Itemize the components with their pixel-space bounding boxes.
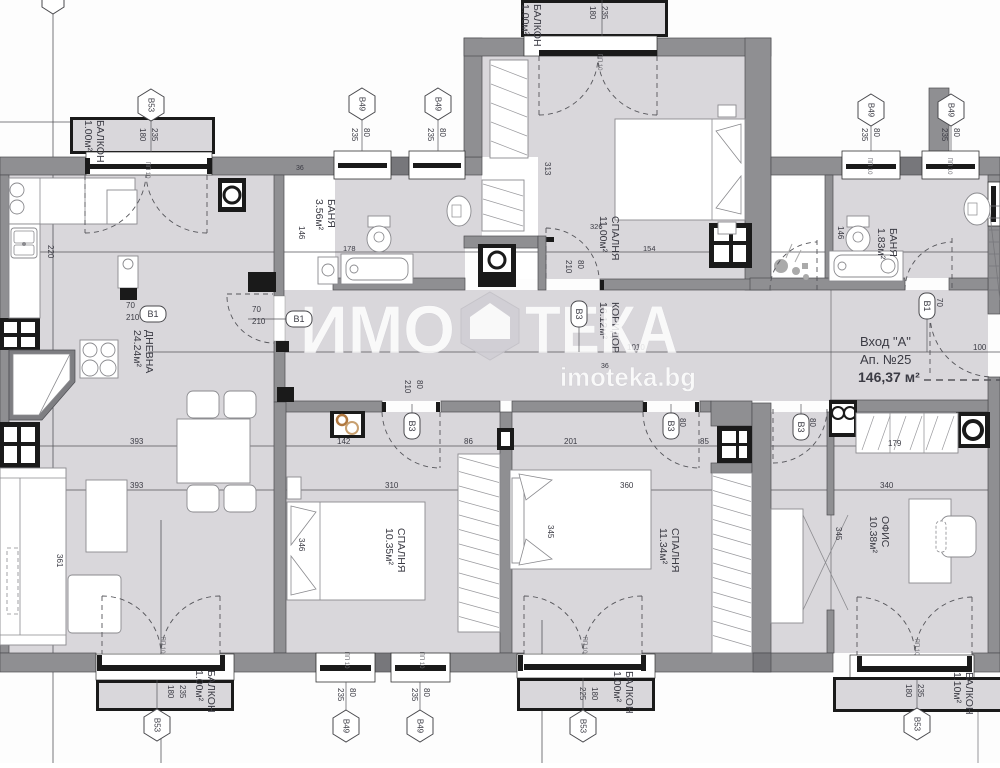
svg-text:24.24м²: 24.24м²: [131, 330, 143, 367]
svg-text:235: 235: [940, 128, 949, 142]
svg-text:201: 201: [564, 437, 578, 446]
svg-text:80: 80: [438, 128, 447, 137]
svg-text:B53: B53: [153, 718, 162, 733]
svg-text:ПП 10: ПП 10: [144, 162, 150, 180]
svg-text:B3: B3: [574, 308, 584, 319]
svg-text:146: 146: [297, 226, 306, 240]
svg-text:БАЛКОН: БАЛКОН: [963, 672, 975, 715]
svg-text:B1: B1: [147, 309, 158, 319]
svg-text:142: 142: [337, 437, 351, 446]
svg-text:ТЕКА: ТЕКА: [525, 292, 678, 368]
svg-text:326: 326: [590, 222, 603, 231]
svg-text:B49: B49: [434, 97, 443, 112]
svg-text:393: 393: [130, 437, 144, 446]
svg-text:210: 210: [403, 380, 412, 394]
svg-text:70: 70: [252, 305, 261, 314]
svg-text:ПП 10: ПП 10: [913, 639, 919, 657]
svg-text:ОФИС: ОФИС: [879, 516, 891, 548]
svg-text:БАЛКОН: БАЛКОН: [94, 120, 106, 163]
svg-text:B49: B49: [416, 719, 425, 734]
svg-text:235: 235: [178, 685, 187, 699]
svg-text:235: 235: [336, 688, 345, 702]
svg-text:345: 345: [834, 527, 843, 541]
svg-text:ПП 10: ПП 10: [946, 158, 952, 176]
svg-text:ПП 10: ПП 10: [159, 637, 165, 655]
svg-text:80: 80: [348, 688, 357, 697]
svg-text:B49: B49: [867, 103, 876, 118]
svg-text:imoteka.bg: imoteka.bg: [560, 362, 696, 392]
svg-text:ИМО: ИМО: [300, 292, 455, 368]
svg-text:B53: B53: [579, 719, 588, 734]
svg-text:180: 180: [138, 128, 147, 142]
svg-text:210: 210: [564, 260, 573, 274]
svg-text:БАЛКОН: БАЛКОН: [205, 670, 217, 713]
svg-text:235: 235: [350, 128, 359, 142]
svg-text:210: 210: [126, 313, 140, 322]
svg-text:180: 180: [590, 687, 599, 701]
svg-text:B49: B49: [358, 97, 367, 112]
svg-text:10.35м²: 10.35м²: [383, 528, 395, 565]
svg-text:ПП 10: ПП 10: [596, 54, 602, 72]
svg-text:70: 70: [126, 301, 135, 310]
svg-text:1.10м²: 1.10м²: [951, 672, 963, 704]
svg-text:B49: B49: [342, 719, 351, 734]
svg-text:ДНЕВНА: ДНЕВНА: [143, 330, 155, 373]
svg-text:БАЛКОН: БАЛКОН: [623, 671, 635, 714]
svg-text:393: 393: [130, 481, 144, 490]
svg-text:180: 180: [904, 684, 913, 698]
svg-text:154: 154: [643, 244, 656, 253]
svg-text:80: 80: [362, 128, 371, 137]
svg-text:СПАЛНЯ: СПАЛНЯ: [395, 528, 407, 572]
svg-text:1.00м²: 1.00м²: [519, 4, 531, 36]
svg-text:179: 179: [888, 439, 902, 448]
svg-text:B53: B53: [147, 98, 156, 113]
svg-text:B3: B3: [666, 420, 676, 431]
svg-text:БАНЯ: БАНЯ: [887, 228, 899, 257]
svg-text:146: 146: [836, 226, 845, 240]
svg-text:1.00м²: 1.00м²: [611, 671, 623, 703]
svg-text:1.00м²: 1.00м²: [193, 670, 205, 702]
svg-text:313: 313: [543, 162, 552, 176]
svg-text:ПП 10: ПП 10: [866, 158, 872, 176]
svg-text:80: 80: [872, 128, 881, 137]
svg-text:B1: B1: [922, 300, 932, 311]
svg-text:361: 361: [55, 554, 64, 568]
svg-text:B3: B3: [407, 420, 417, 431]
svg-text:80: 80: [576, 260, 585, 269]
svg-text:235: 235: [410, 688, 419, 702]
svg-text:178: 178: [343, 244, 356, 253]
svg-text:БАЛКОН: БАЛКОН: [531, 4, 543, 47]
svg-text:ПП 10: ПП 10: [343, 652, 349, 670]
svg-text:B49: B49: [947, 103, 956, 118]
svg-text:340: 340: [880, 481, 894, 490]
svg-text:360: 360: [620, 481, 634, 490]
svg-text:180: 180: [588, 6, 597, 20]
svg-text:86: 86: [464, 437, 473, 446]
svg-text:346: 346: [297, 538, 306, 552]
svg-text:235: 235: [150, 128, 159, 142]
svg-text:70: 70: [935, 298, 944, 307]
svg-text:235: 235: [426, 128, 435, 142]
svg-text:180: 180: [166, 685, 175, 699]
svg-text:ПП 10: ПП 10: [418, 652, 424, 670]
svg-text:Ап. №25: Ап. №25: [860, 352, 911, 367]
svg-text:B3: B3: [796, 421, 806, 432]
svg-text:235: 235: [600, 6, 609, 20]
svg-text:Вход "А": Вход "А": [860, 334, 911, 349]
svg-text:БАНЯ: БАНЯ: [325, 199, 337, 228]
svg-text:B53: B53: [913, 717, 922, 732]
svg-text:1.83м²: 1.83м²: [875, 228, 887, 260]
svg-text:310: 310: [385, 481, 399, 490]
svg-text:36: 36: [296, 165, 304, 172]
svg-text:80: 80: [422, 688, 431, 697]
svg-text:ПП 10: ПП 10: [581, 637, 587, 655]
svg-text:235: 235: [860, 128, 869, 142]
svg-text:10.38м²: 10.38м²: [867, 516, 879, 553]
svg-text:СПАЛНЯ: СПАЛНЯ: [609, 216, 621, 260]
svg-text:СПАЛНЯ: СПАЛНЯ: [669, 528, 681, 572]
svg-text:B1: B1: [293, 314, 304, 324]
svg-text:80: 80: [415, 380, 424, 389]
svg-text:80: 80: [952, 128, 961, 137]
svg-text:220: 220: [46, 245, 55, 259]
svg-text:100: 100: [973, 343, 987, 352]
svg-text:345: 345: [546, 525, 555, 539]
svg-text:210: 210: [252, 317, 266, 326]
svg-text:225: 225: [578, 687, 587, 701]
svg-text:1.00м²: 1.00м²: [82, 120, 94, 152]
svg-text:146,37 м²: 146,37 м²: [858, 369, 920, 385]
svg-text:85: 85: [700, 437, 709, 446]
svg-text:11.34м²: 11.34м²: [657, 528, 669, 565]
svg-text:3.56м²: 3.56м²: [313, 199, 325, 231]
